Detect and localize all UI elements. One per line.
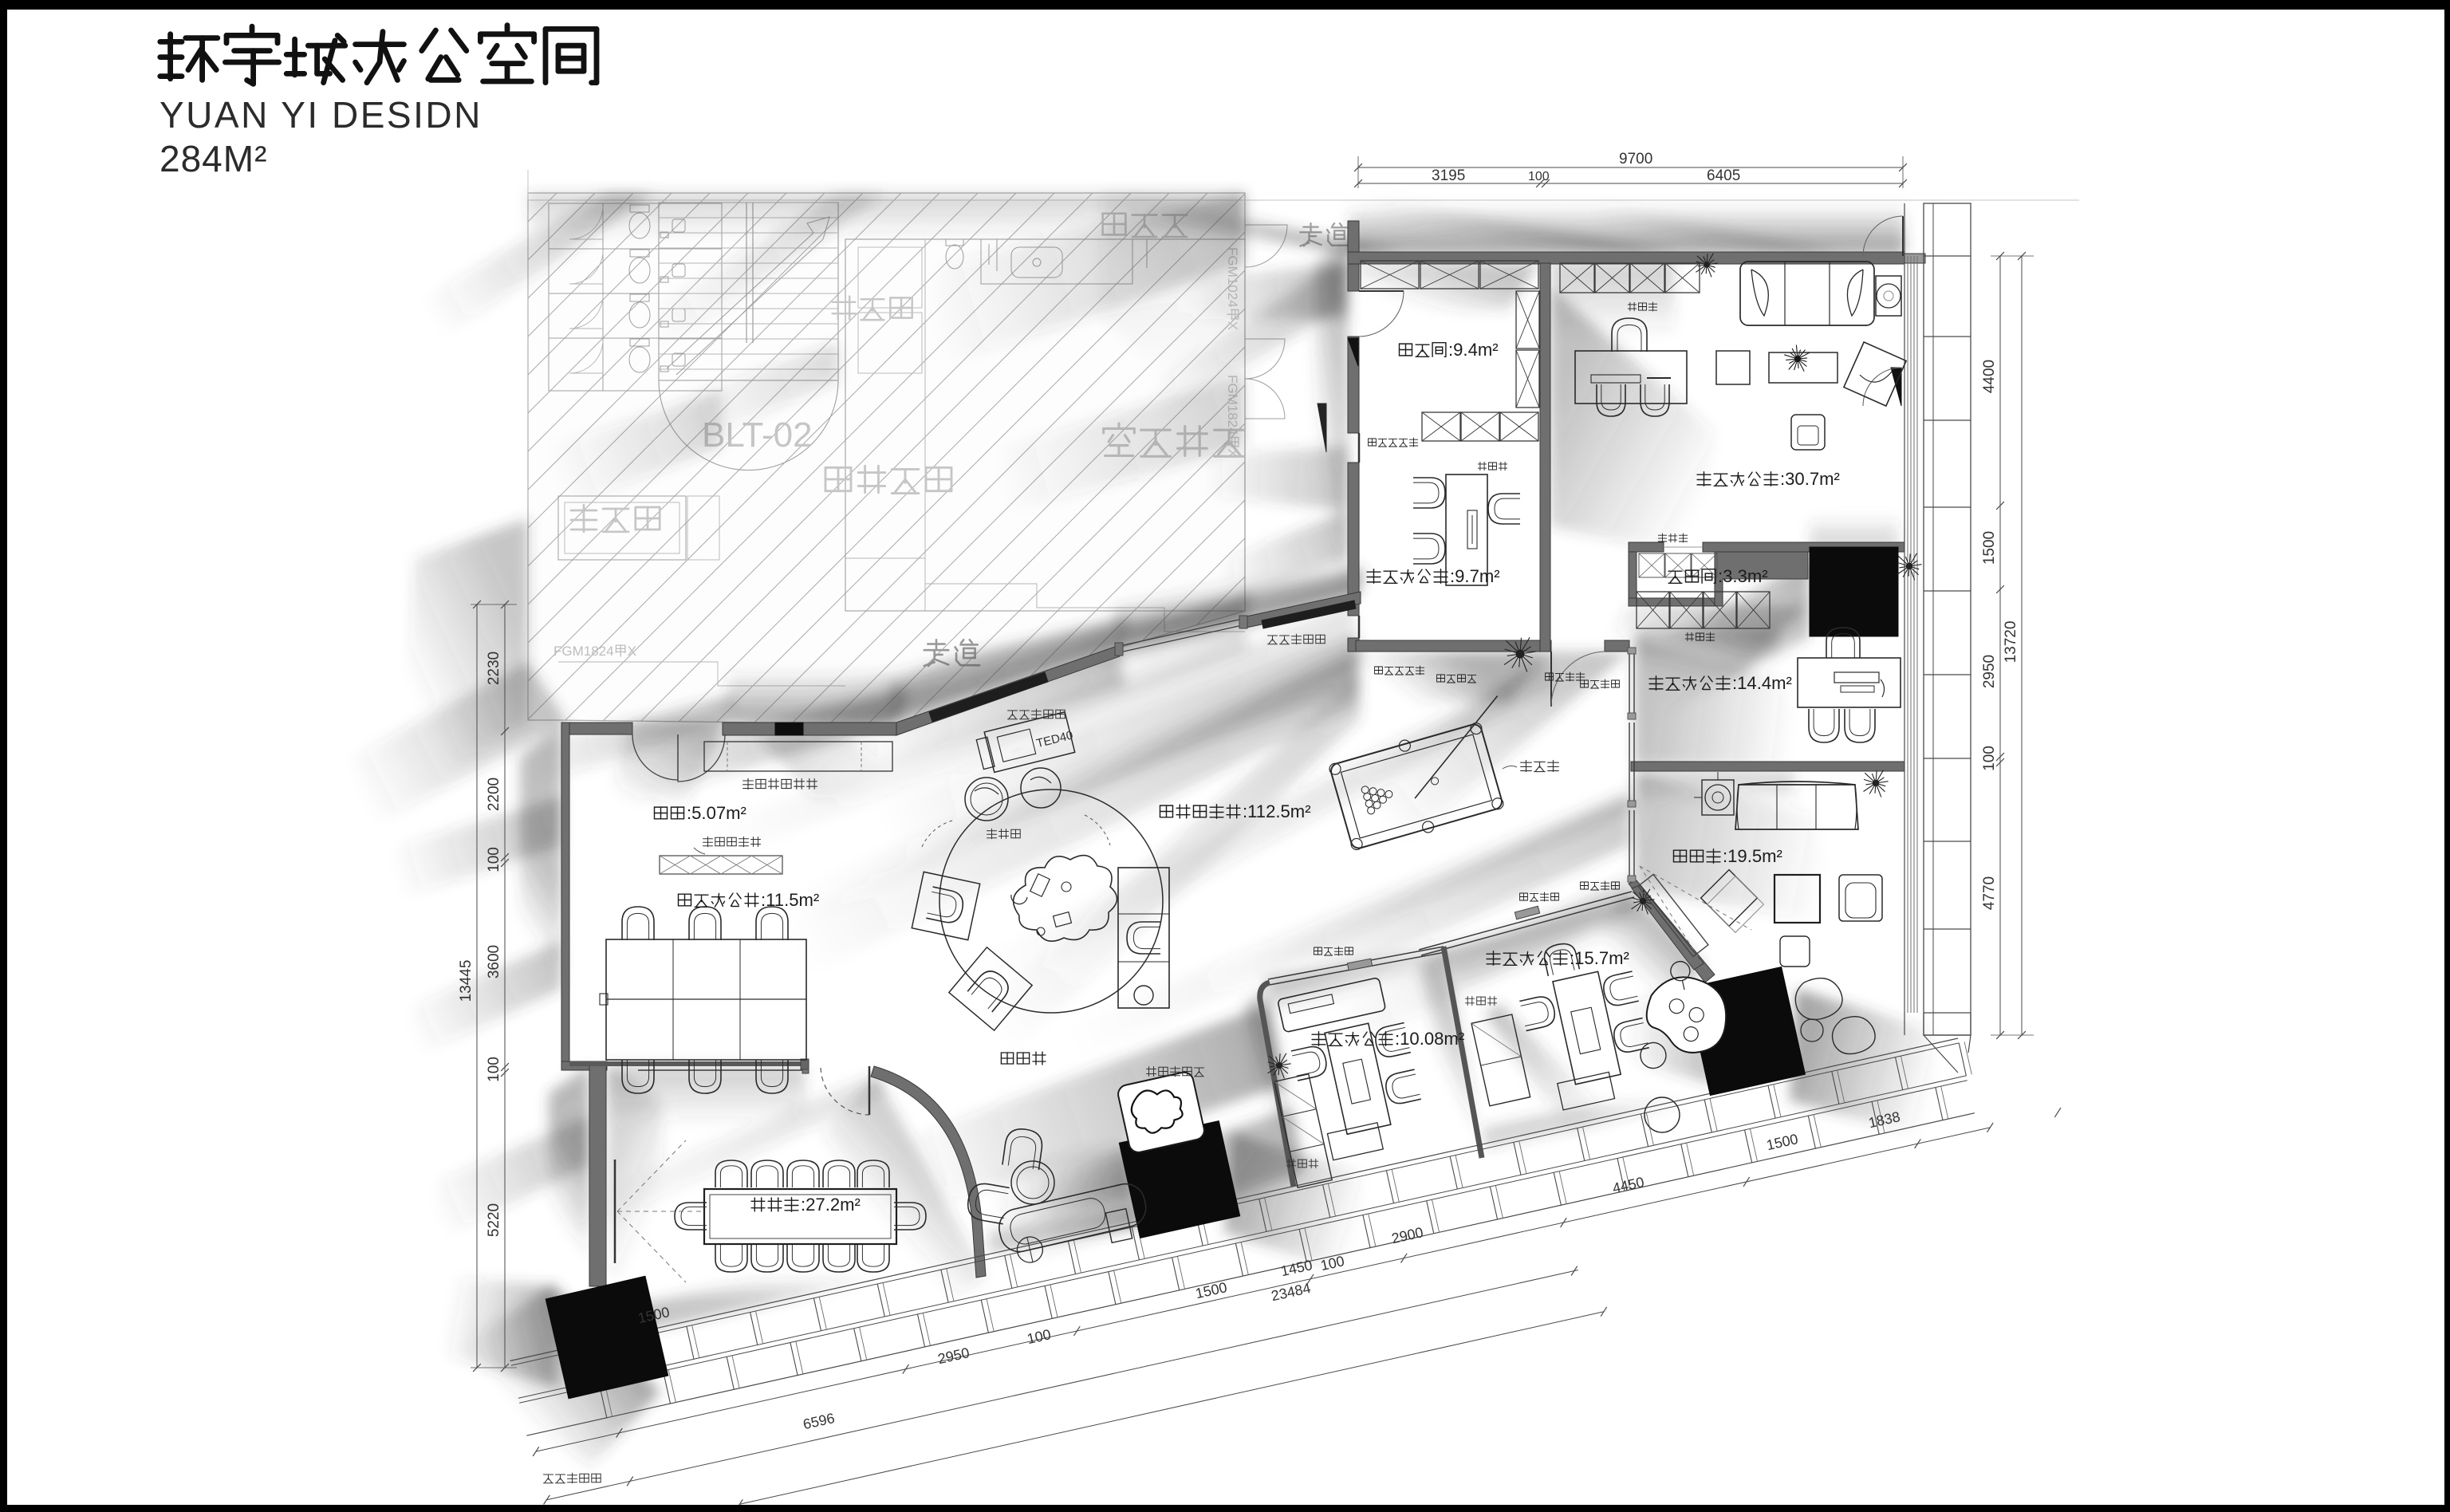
svg-text::112.5m²: :112.5m² bbox=[1243, 801, 1311, 821]
svg-text:5220: 5220 bbox=[486, 1203, 502, 1237]
svg-text:13445: 13445 bbox=[458, 960, 475, 1002]
svg-text:4400: 4400 bbox=[1981, 360, 1998, 393]
svg-text:100: 100 bbox=[486, 847, 502, 872]
svg-text::30.7m²: :30.7m² bbox=[1780, 469, 1840, 489]
svg-text::19.5m²: :19.5m² bbox=[1723, 846, 1782, 866]
svg-text:100: 100 bbox=[486, 1057, 502, 1082]
svg-text::5.07m²: :5.07m² bbox=[687, 803, 746, 823]
svg-text:100: 100 bbox=[1981, 746, 1998, 771]
svg-text::3.3m²: :3.3m² bbox=[1718, 566, 1768, 586]
svg-text:2950: 2950 bbox=[1981, 655, 1998, 688]
svg-text::14.4m²: :14.4m² bbox=[1732, 673, 1792, 693]
svg-text:YUAN YI DESIDN: YUAN YI DESIDN bbox=[160, 94, 483, 136]
svg-text:6405: 6405 bbox=[1707, 167, 1740, 184]
svg-text:FGM1824甲X: FGM1824甲X bbox=[553, 644, 636, 659]
svg-text::9.4m²: :9.4m² bbox=[1448, 340, 1499, 360]
svg-text:9700: 9700 bbox=[1619, 151, 1652, 167]
svg-text:3600: 3600 bbox=[486, 945, 502, 978]
svg-text::10.08m²: :10.08m² bbox=[1395, 1029, 1464, 1049]
svg-text::27.2m²: :27.2m² bbox=[801, 1195, 861, 1215]
svg-text:3195: 3195 bbox=[1432, 167, 1465, 184]
svg-text:2200: 2200 bbox=[486, 778, 502, 811]
svg-text:1500: 1500 bbox=[1981, 531, 1998, 565]
svg-text:100: 100 bbox=[1528, 170, 1550, 183]
svg-text::15.7m²: :15.7m² bbox=[1570, 948, 1629, 968]
svg-text::11.5m²: :11.5m² bbox=[761, 890, 819, 910]
svg-text:13720: 13720 bbox=[2003, 621, 2019, 663]
svg-text:2230: 2230 bbox=[486, 652, 502, 685]
svg-text:4770: 4770 bbox=[1981, 876, 1998, 910]
svg-text:284M²: 284M² bbox=[160, 138, 267, 179]
svg-text::9.7m²: :9.7m² bbox=[1450, 566, 1500, 586]
